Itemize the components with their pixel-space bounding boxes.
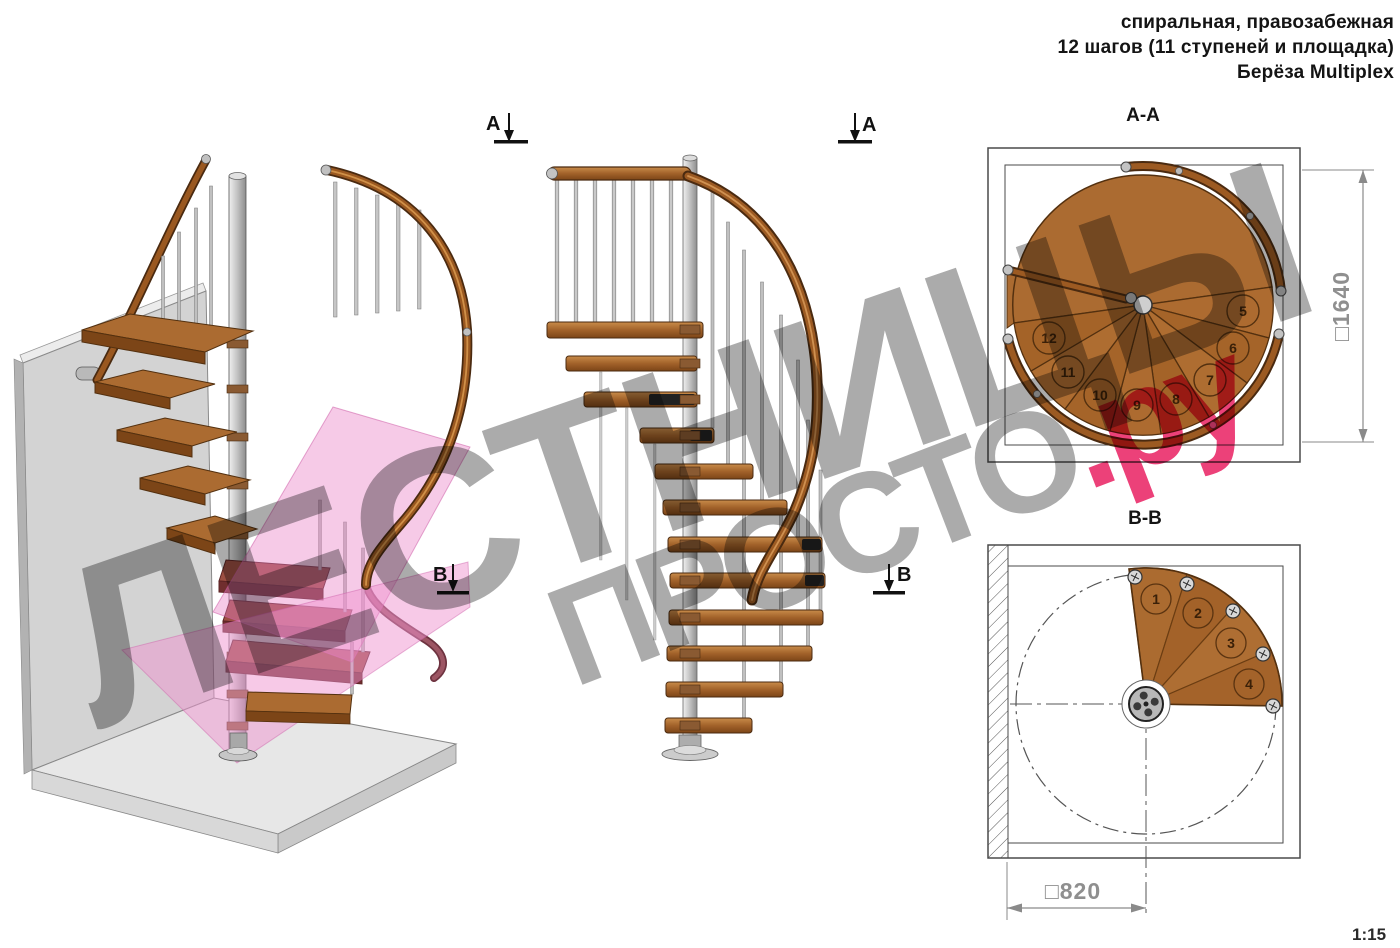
svg-text:A: A <box>862 114 876 136</box>
drawing-sheet: A A B B <box>0 0 1400 943</box>
scale-label: 1:15 <box>1352 925 1386 945</box>
svg-text:9: 9 <box>1133 397 1141 413</box>
bb-wall-hatch <box>988 545 1008 858</box>
svg-text:A: A <box>486 113 500 135</box>
svg-text:11: 11 <box>1061 364 1076 380</box>
elevation-view: A A B B <box>433 113 911 761</box>
svg-text:3: 3 <box>1227 635 1235 651</box>
svg-text:8: 8 <box>1172 391 1180 407</box>
top-rail <box>548 167 691 180</box>
far-balusters <box>600 372 657 640</box>
svg-text:6: 6 <box>1229 340 1237 356</box>
center-pole-elev <box>683 158 697 752</box>
svg-text:4: 4 <box>1245 676 1253 692</box>
section-marker-b-right: B <box>873 564 911 595</box>
section-marker-a-left: A <box>486 113 528 144</box>
stair-material: Берёза Multiplex <box>1058 60 1394 85</box>
stair-type: спиральная, правозабежная <box>1058 10 1394 35</box>
rail-joint <box>463 328 471 336</box>
bb-dimension-label: □820 <box>1045 878 1101 904</box>
title-block: спиральная, правозабежная 12 шагов (11 с… <box>1058 10 1394 85</box>
stair-steps: 12 шагов (11 ступеней и площадка) <box>1058 35 1394 60</box>
section-bb-view: B-B 1 2 3 4 <box>988 508 1300 920</box>
section-aa-view: A-A <box>988 105 1374 462</box>
right-balusters <box>711 192 822 725</box>
bottom-tread <box>246 692 352 714</box>
bb-center-flange <box>1122 680 1170 728</box>
section-bb-title: B-B <box>1128 508 1162 529</box>
rail-end-cap <box>202 155 211 164</box>
bb-dimension: □820 <box>1007 862 1146 920</box>
svg-text:1: 1 <box>1152 591 1160 607</box>
section-aa-title: A-A <box>1126 105 1160 126</box>
top-balusters <box>555 180 673 322</box>
svg-text:B: B <box>897 564 911 586</box>
section-marker-a-right: A <box>838 113 876 144</box>
technical-drawing: A A B B <box>0 0 1400 943</box>
svg-text:B: B <box>433 564 447 586</box>
aa-dimension: □1640 <box>1302 170 1374 442</box>
svg-text:10: 10 <box>1092 387 1108 403</box>
svg-text:7: 7 <box>1206 372 1214 388</box>
rail-start-cap <box>321 165 331 175</box>
aa-dimension-label: □1640 <box>1328 271 1354 341</box>
svg-text:12: 12 <box>1041 330 1057 346</box>
svg-text:2: 2 <box>1194 605 1202 621</box>
iso-view <box>14 155 471 854</box>
svg-text:5: 5 <box>1239 303 1247 319</box>
